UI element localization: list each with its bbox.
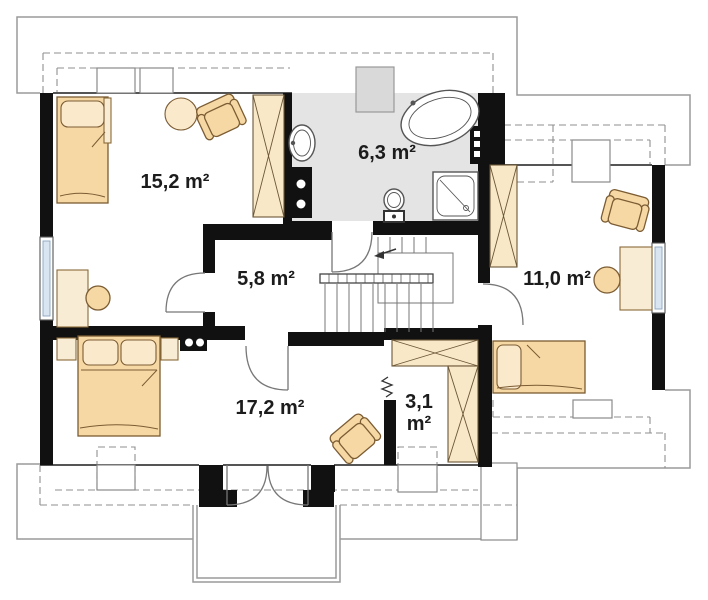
- dormer-notch: [97, 465, 135, 490]
- shower: [433, 172, 478, 220]
- dormer-notch: [97, 68, 135, 93]
- door-bedroom1: [166, 273, 205, 312]
- dormer-notch: [398, 465, 437, 492]
- door-room-right: [483, 284, 523, 325]
- stool-room-right: [594, 267, 620, 293]
- armchair-bedroom1: [193, 92, 247, 141]
- stair-handrail: [320, 274, 433, 283]
- wardrobe-bedroom1: [253, 95, 284, 217]
- label-hall-area: 5,8 m²: [237, 268, 295, 290]
- balcony-french-doors: [227, 465, 308, 505]
- double-bed: [78, 336, 160, 436]
- label-bedroom1-area: 15,2 m²: [141, 171, 210, 193]
- vent-stack-bathroom-left: [290, 167, 312, 218]
- round-table: [165, 98, 197, 130]
- staircase: [320, 237, 453, 332]
- dormer-notch: [572, 140, 610, 182]
- washbasin: [289, 125, 315, 161]
- window-right: [652, 243, 665, 313]
- dormer-notch: [573, 400, 612, 418]
- stool-bedroom1: [86, 286, 110, 310]
- wardrobe-closet-right: [448, 366, 478, 462]
- nightstand-right: [161, 338, 178, 360]
- door-bedroom2: [246, 346, 288, 390]
- label-bathroom-area: 6,3 m²: [358, 142, 416, 164]
- balcony: [193, 505, 340, 582]
- single-bed-room-right: [493, 341, 585, 393]
- label-room-right-area: 11,0 m²: [523, 268, 591, 290]
- chimney-block: [356, 67, 394, 112]
- nightstand-left: [57, 338, 76, 360]
- desk-bedroom1: [57, 270, 88, 327]
- label-closet-area-line2: m²: [407, 413, 432, 435]
- armchair-bedroom2: [327, 411, 383, 465]
- single-bed-bedroom1: [57, 97, 111, 203]
- vent-stack-bathroom-right: [470, 126, 484, 164]
- dormer-notch: [140, 68, 173, 93]
- label-bedroom2-area: 17,2 m²: [236, 397, 305, 419]
- vent-stack-hall: [180, 334, 207, 351]
- window-left: [40, 237, 53, 320]
- door-bathroom: [332, 232, 372, 272]
- label-closet-area-line1: 3,1: [405, 391, 433, 413]
- closet-opening-zigzag: [382, 377, 392, 397]
- floor-plan-drawing: 15,2 m² 6,3 m² 5,8 m² 11,0 m² 17,2 m² 3,…: [0, 0, 708, 600]
- floor-plan-page: 15,2 m² 6,3 m² 5,8 m² 11,0 m² 17,2 m² 3,…: [0, 0, 708, 600]
- toilet: [384, 189, 404, 222]
- wardrobe-room-right: [490, 165, 517, 267]
- stair-direction-arrow: [374, 249, 396, 259]
- wardrobe-closet-top: [392, 340, 478, 366]
- desk-room-right: [620, 247, 652, 310]
- armchair-room-right: [600, 188, 651, 232]
